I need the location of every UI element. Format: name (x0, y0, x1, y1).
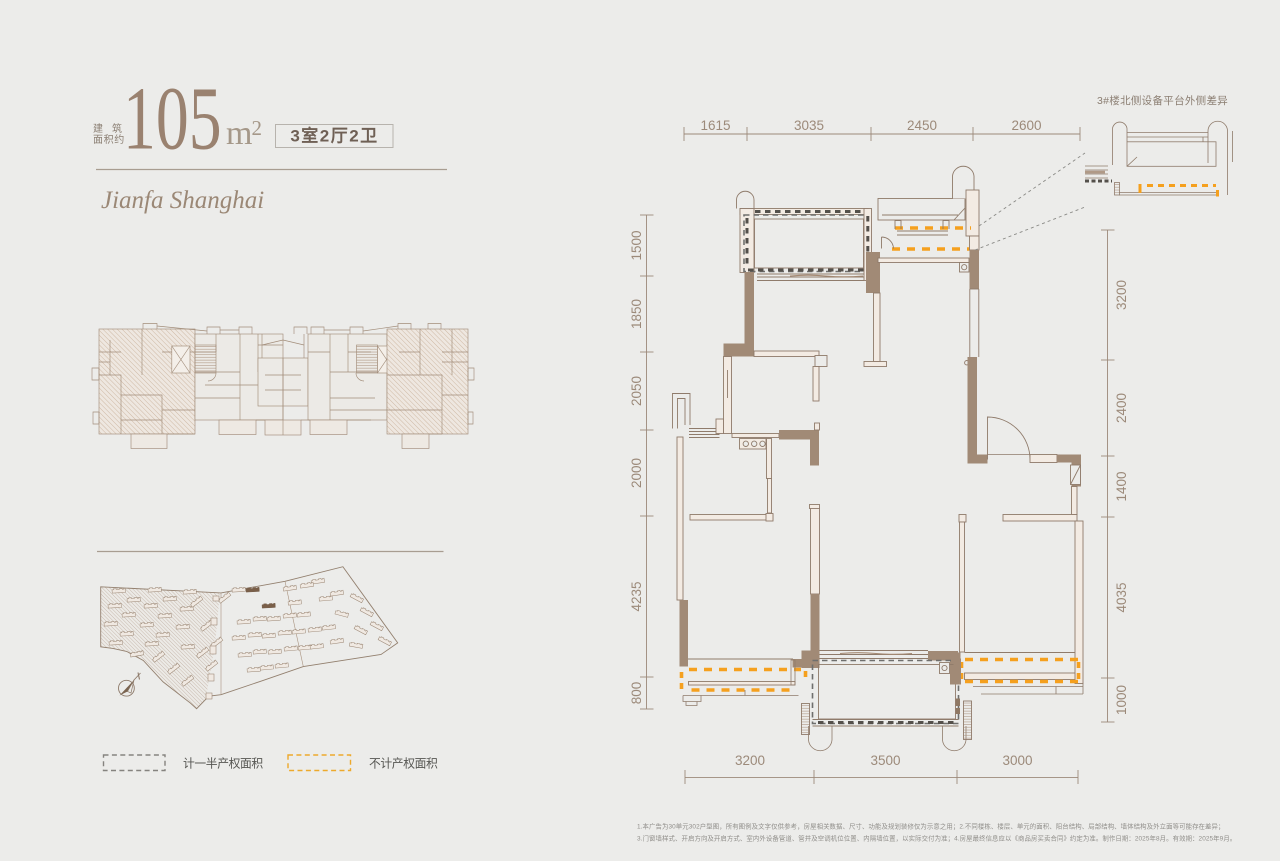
svg-text:2: 2 (252, 116, 263, 140)
svg-text:2050: 2050 (629, 376, 644, 406)
svg-text:1000: 1000 (1114, 685, 1129, 715)
svg-text:面积约: 面积约 (93, 133, 125, 146)
svg-text:1850: 1850 (629, 299, 644, 329)
svg-text:Jianfa Shanghai: Jianfa Shanghai (101, 187, 264, 214)
svg-text:3#楼北侧设备平台外侧差异: 3#楼北侧设备平台外侧差异 (1097, 94, 1228, 107)
svg-text:2600: 2600 (1011, 118, 1041, 133)
svg-text:1500: 1500 (629, 230, 644, 260)
svg-text:3035: 3035 (794, 118, 824, 133)
svg-text:3500: 3500 (870, 753, 900, 768)
svg-text:3200: 3200 (735, 753, 765, 768)
svg-text:4035: 4035 (1114, 582, 1129, 612)
svg-text:1615: 1615 (700, 118, 730, 133)
svg-text:105: 105 (123, 70, 222, 169)
svg-text:2450: 2450 (907, 118, 937, 133)
svg-text:800: 800 (629, 682, 644, 705)
svg-text:1400: 1400 (1114, 471, 1129, 501)
svg-text:2000: 2000 (629, 458, 644, 488)
svg-text:2400: 2400 (1114, 393, 1129, 423)
svg-text:m: m (226, 115, 252, 152)
svg-text:3室2厅2卫: 3室2厅2卫 (290, 126, 378, 146)
svg-text:计一半产权面积: 计一半产权面积 (183, 757, 263, 771)
svg-text:1.本广告为30单元302户型图，所有图例及文字仅供参考，房: 1.本广告为30单元302户型图，所有图例及文字仅供参考，房屋相关数据、尺寸、功… (637, 822, 1225, 831)
svg-text:4235: 4235 (629, 581, 644, 611)
svg-text:3.门窗墙样式、开启方向及开启方式、室内外设备管道、管井及空: 3.门窗墙样式、开启方向及开启方式、室内外设备管道、管井及空调机位位置、内隔墙位… (637, 834, 1236, 843)
svg-text:不计产权面积: 不计产权面积 (369, 757, 438, 771)
svg-text:3000: 3000 (1002, 753, 1032, 768)
svg-text:3200: 3200 (1114, 280, 1129, 310)
